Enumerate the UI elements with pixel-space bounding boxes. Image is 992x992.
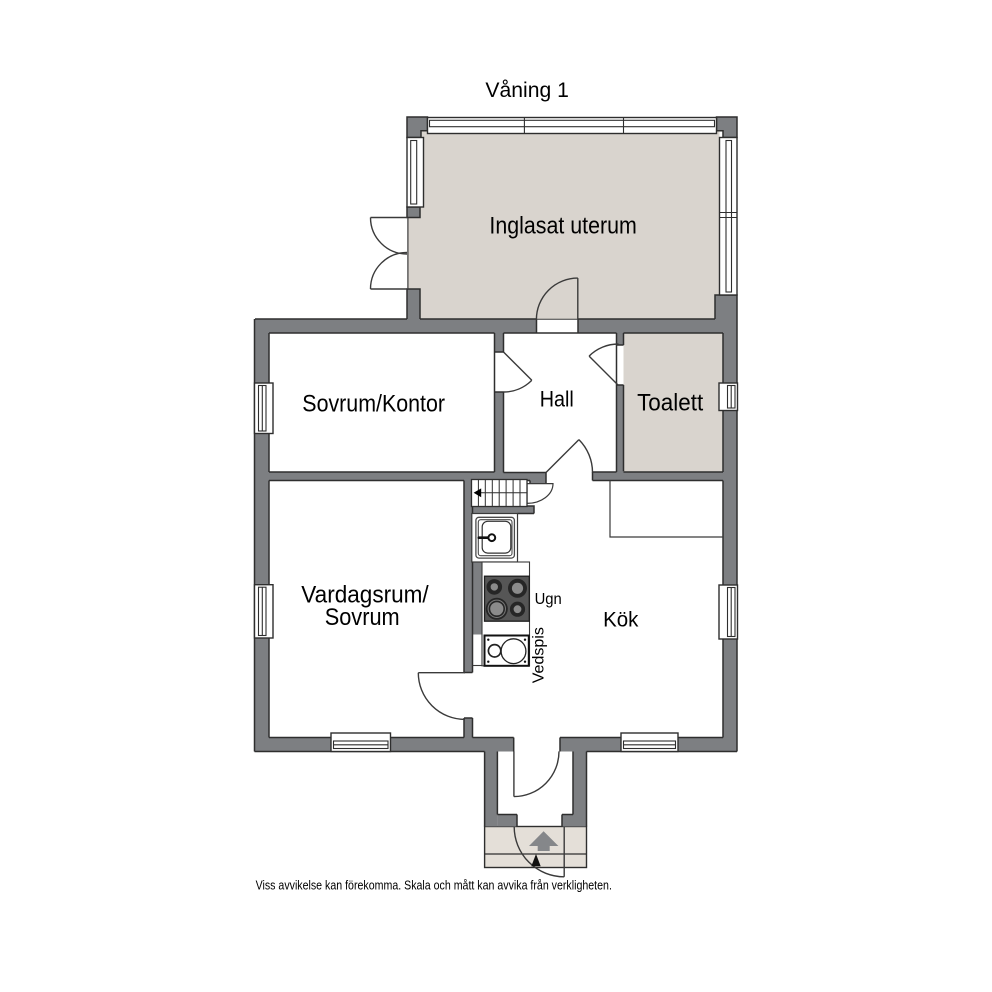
svg-text:Toalett: Toalett xyxy=(637,390,703,417)
svg-text:Sovrum: Sovrum xyxy=(325,604,400,631)
svg-text:Våning 1: Våning 1 xyxy=(485,78,569,102)
svg-text:Kök: Kök xyxy=(603,607,639,631)
svg-text:Viss avvikelse kan förekomma.: Viss avvikelse kan förekomma. Skala och … xyxy=(256,877,612,892)
svg-text:Vedspis: Vedspis xyxy=(531,627,548,683)
svg-text:Inglasat uterum: Inglasat uterum xyxy=(489,212,636,239)
svg-text:Sovrum/Kontor: Sovrum/Kontor xyxy=(302,391,445,418)
svg-text:Hall: Hall xyxy=(540,387,574,412)
svg-text:Ugn: Ugn xyxy=(535,591,562,608)
